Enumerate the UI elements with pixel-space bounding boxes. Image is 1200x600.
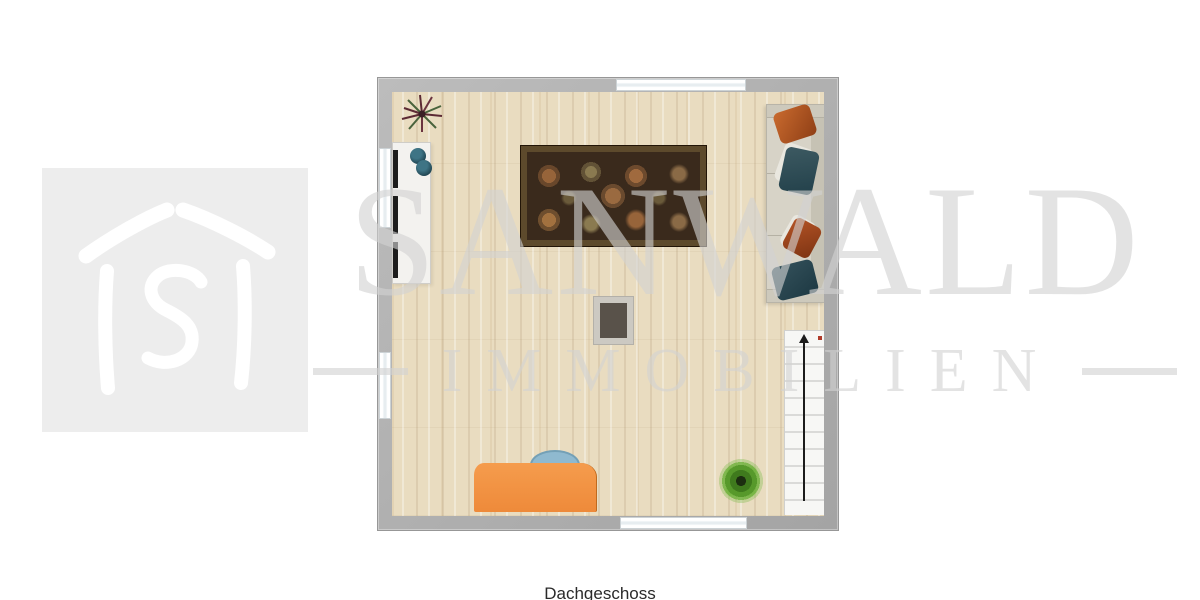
watermark-divider <box>1082 368 1177 375</box>
room-floor <box>392 92 824 516</box>
floor-label: Dachgeschoss <box>0 584 1200 600</box>
stairs-marker-dot <box>818 336 822 340</box>
floorplan <box>378 78 838 530</box>
house-s-logo-icon <box>42 168 308 432</box>
window <box>379 352 391 419</box>
chimney-block <box>593 296 634 345</box>
window <box>379 148 391 228</box>
sofa <box>766 104 824 303</box>
agency-logo <box>42 168 308 432</box>
desk <box>474 463 597 512</box>
stairs-up-arrow <box>803 341 805 501</box>
stairs <box>784 330 824 515</box>
chimney-flue <box>600 303 627 338</box>
area-rug <box>520 145 707 247</box>
page: SANWALD IMMOBILIEN Dachgeschoss <box>0 0 1200 600</box>
fern-plant <box>717 457 765 505</box>
decor-bowl <box>416 160 432 176</box>
spiky-plant-icon <box>400 92 444 136</box>
spiky-plant <box>400 92 444 136</box>
wall-tv <box>393 150 398 278</box>
window <box>616 79 746 91</box>
stairs-arrow-head-icon <box>799 334 809 343</box>
window <box>620 517 747 529</box>
